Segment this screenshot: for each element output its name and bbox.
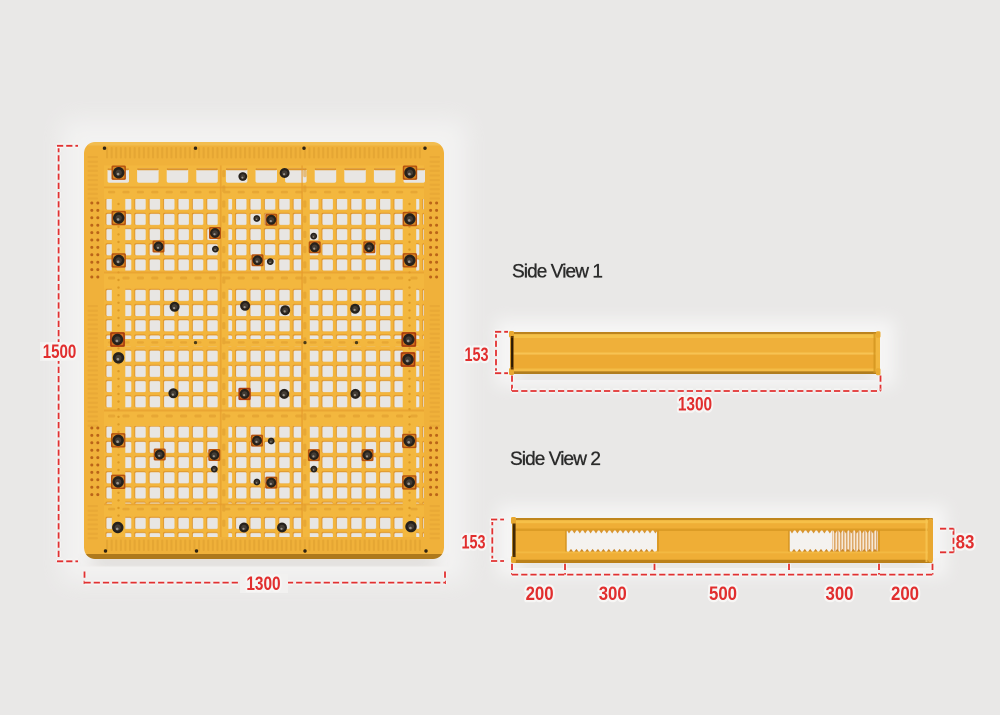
svg-text:1300: 1300 <box>678 395 712 416</box>
svg-text:500: 500 <box>709 584 737 605</box>
svg-text:Side View 1: Side View 1 <box>512 262 602 283</box>
svg-text:83: 83 <box>956 532 975 553</box>
svg-text:1300: 1300 <box>246 574 280 595</box>
svg-text:1500: 1500 <box>43 342 77 363</box>
svg-text:300: 300 <box>826 584 854 605</box>
svg-text:153: 153 <box>465 345 489 366</box>
svg-text:Side View 2: Side View 2 <box>510 449 600 470</box>
svg-text:200: 200 <box>526 584 554 605</box>
svg-text:300: 300 <box>599 584 627 605</box>
svg-text:200: 200 <box>891 584 919 605</box>
svg-text:153: 153 <box>462 532 486 553</box>
